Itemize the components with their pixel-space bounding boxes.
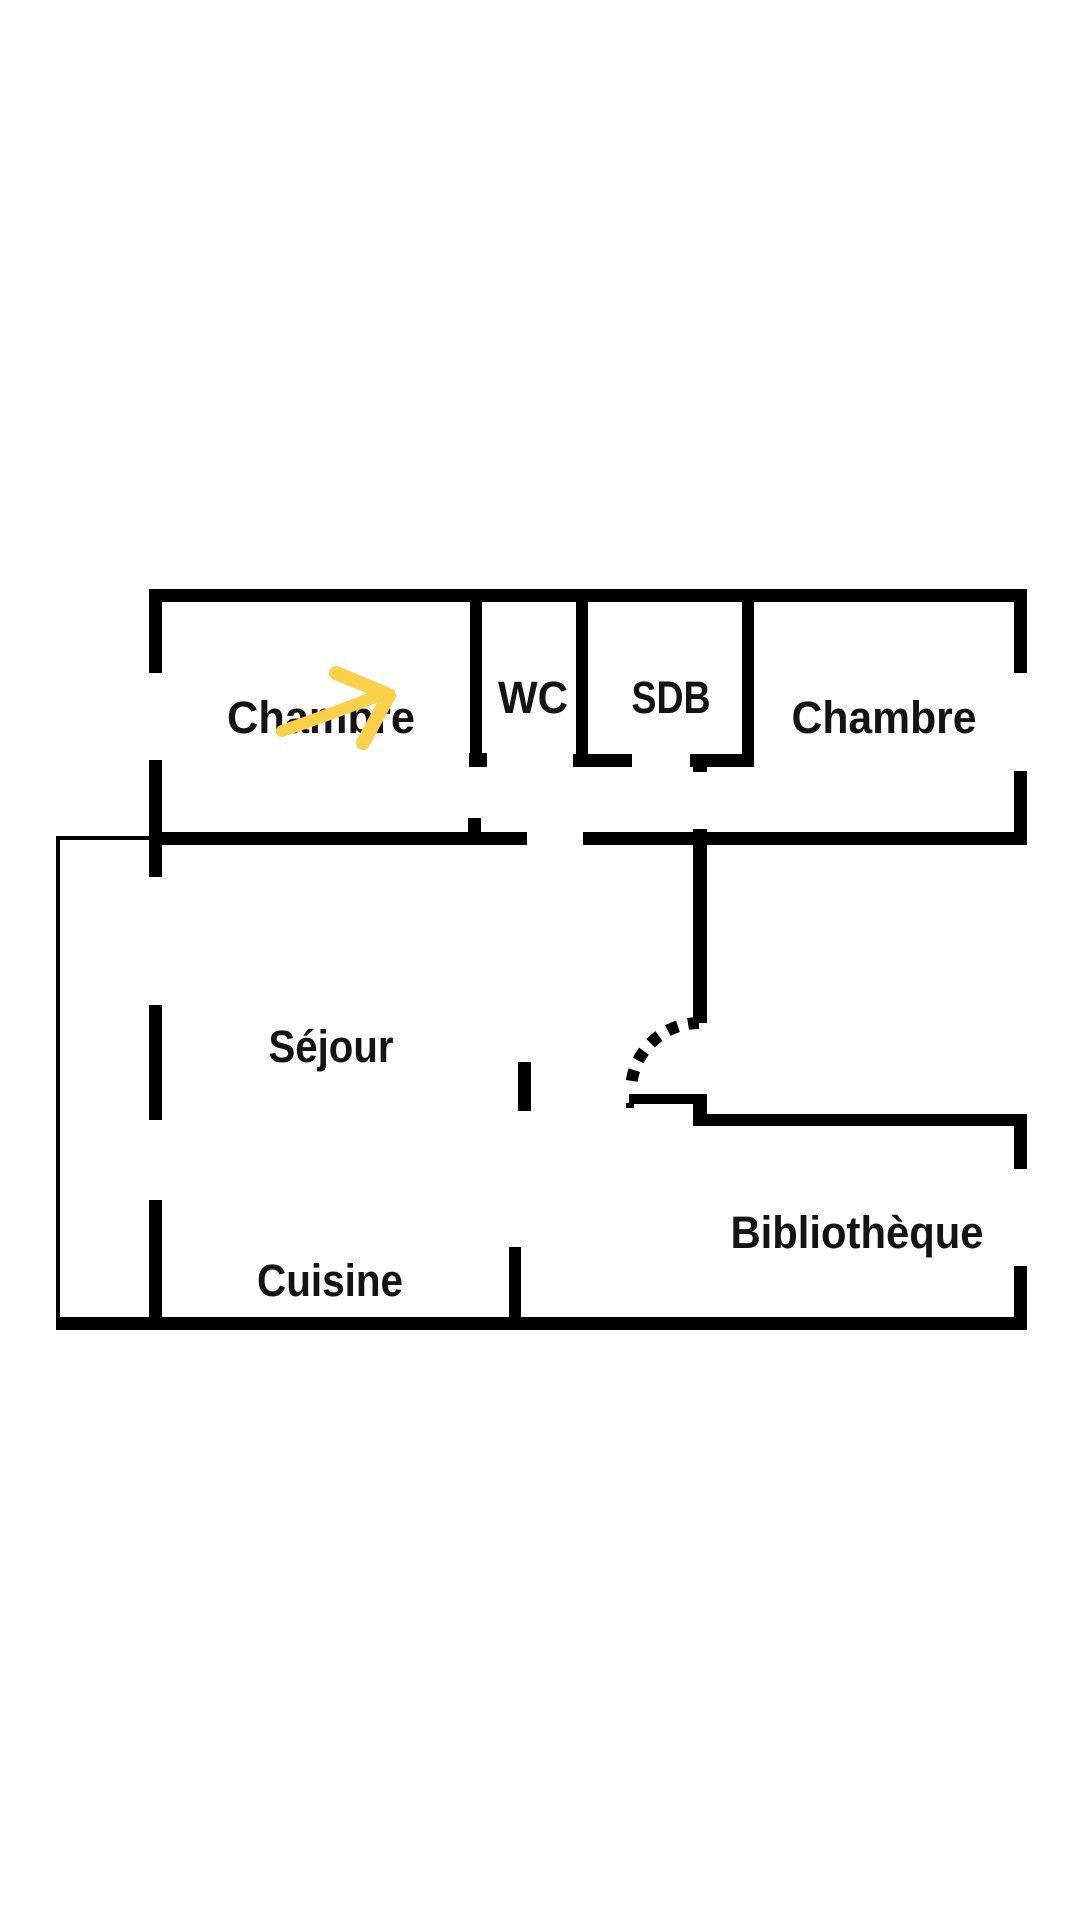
svg-text:SDB: SDB bbox=[632, 672, 711, 723]
svg-text:WC: WC bbox=[498, 672, 568, 723]
svg-text:Séjour: Séjour bbox=[269, 1021, 394, 1072]
svg-text:Cuisine: Cuisine bbox=[257, 1255, 403, 1306]
svg-text:Chambre: Chambre bbox=[792, 692, 977, 743]
svg-text:Bibliothèque: Bibliothèque bbox=[731, 1207, 984, 1258]
